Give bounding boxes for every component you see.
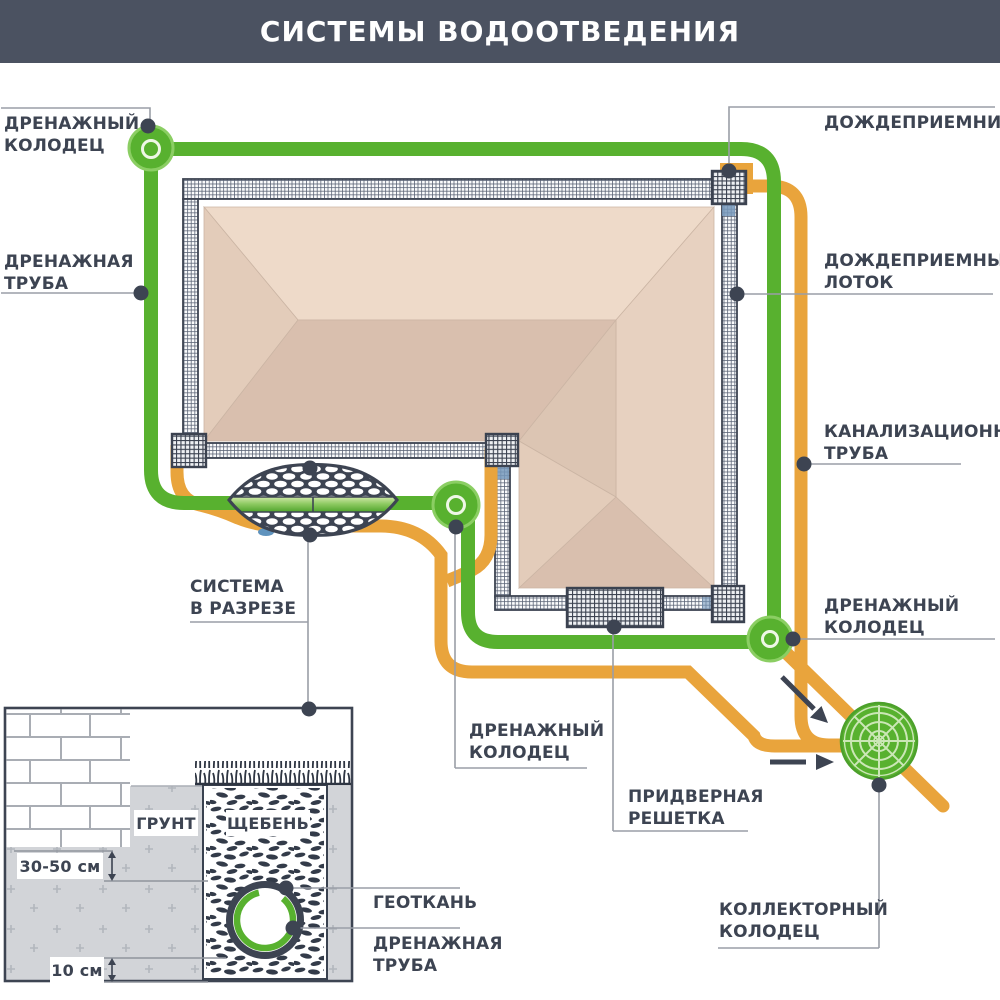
diagram-canvas [0, 0, 1000, 1000]
drain-well-bottom-right [748, 617, 792, 661]
badge-gravel: ЩЕБЕНЬ [226, 810, 310, 836]
label-door-grate: ПРИДВЕРНАЯ РЕШЕТКА [628, 786, 764, 830]
section-detail [5, 708, 352, 982]
drainage-infographic: СИСТЕМЫ ВОДООТВЕДЕНИЯ [0, 0, 1000, 1000]
drain-accent [496, 466, 509, 479]
grass [195, 761, 351, 785]
label-section-view: СИСТЕМА В РАЗРЕЗЕ [190, 576, 296, 620]
badge-soil: ГРУНТ [134, 810, 198, 836]
corner-grate-wing-right [712, 586, 744, 622]
label-drain-pipe-section: ДРЕНАЖНАЯ ТРУБА [373, 933, 503, 977]
label-drain-pipe-left: ДРЕНАЖНАЯ ТРУБА [4, 251, 134, 295]
label-geotextile: ГЕОТКАНЬ [373, 892, 477, 914]
label-drain-well-top-left: ДРЕНАЖНЫЙ КОЛОДЕЦ [4, 113, 139, 157]
corner-grate-wing-left [486, 434, 518, 466]
collector-well [841, 703, 917, 779]
label-sewer-pipe: КАНАЛИЗАЦИОННАЯ ТРУБА [824, 421, 1000, 465]
label-rain-tray: ДОЖДЕПРИЕМНЫЙ ЛОТОК [824, 250, 1000, 294]
badge-depth-lower: 10 см [50, 957, 104, 983]
label-drain-well-middle: ДРЕНАЖНЫЙ КОЛОДЕЦ [469, 720, 604, 764]
label-collector-well: КОЛЛЕКТОРНЫЙ КОЛОДЕЦ [719, 899, 888, 943]
label-drain-well-right: ДРЕНАЖНЫЙ КОЛОДЕЦ [824, 595, 959, 639]
brick-wall [7, 710, 131, 848]
label-rain-inlet: ДОЖДЕПРИЕМНИК [824, 112, 1000, 134]
badge-depth-upper: 30-50 см [17, 853, 103, 879]
corner-grate-bottom-left [172, 434, 206, 467]
